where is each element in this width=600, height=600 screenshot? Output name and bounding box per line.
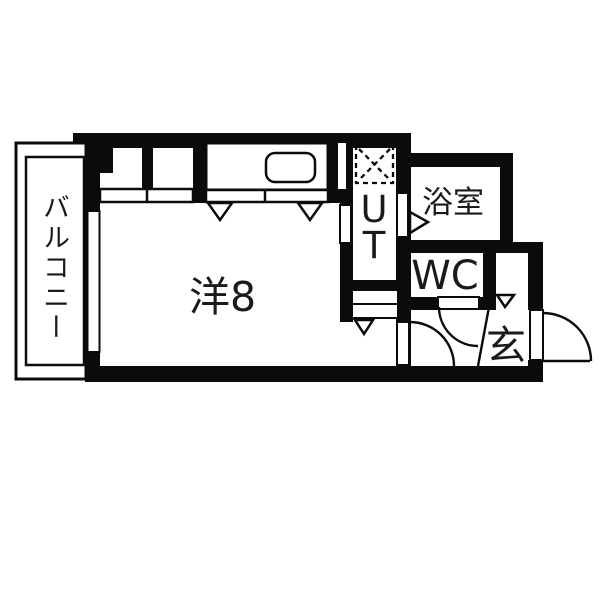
utility-side-opening xyxy=(340,205,351,243)
wall-wc-right xyxy=(483,253,496,310)
wall-right-lower xyxy=(528,360,543,382)
wall-bottom xyxy=(85,366,543,382)
balcony-label: バルコニー xyxy=(39,182,73,354)
wall-bath-top xyxy=(396,153,513,167)
floor-plan-drawing xyxy=(0,0,600,600)
entrance-door-opening xyxy=(530,310,543,360)
room-door-opening xyxy=(397,322,409,365)
utility-label: UT xyxy=(356,192,392,265)
toilet-label: WC xyxy=(407,253,483,299)
kitchen-opening-triangle-left xyxy=(208,203,232,220)
wall-left-upper xyxy=(87,148,100,212)
wall-closet-divider xyxy=(142,148,153,189)
floor-plan: バルコニー 洋8 UT 浴室 WC 玄 xyxy=(0,0,600,600)
main-room-label: 洋8 xyxy=(189,263,269,323)
balcony-window xyxy=(88,211,100,352)
wall-right-upper xyxy=(528,242,543,310)
room-door-swing-arc xyxy=(410,322,454,366)
entrance-cabinet-triangle xyxy=(497,295,514,307)
kitchen-sink-icon xyxy=(266,153,315,182)
entrance-door-swing-arc xyxy=(543,313,591,361)
wall-bath-right xyxy=(500,153,513,253)
utility-opening-triangle xyxy=(355,320,373,334)
entrance-label: 玄 xyxy=(486,313,530,371)
kitchen-side-slot xyxy=(337,142,347,190)
kitchen-counter-front xyxy=(206,190,328,202)
washing-machine-space-icon xyxy=(356,146,393,183)
kitchen-opening-triangle-right xyxy=(298,203,322,220)
bathroom-label: 浴室 xyxy=(405,177,501,222)
